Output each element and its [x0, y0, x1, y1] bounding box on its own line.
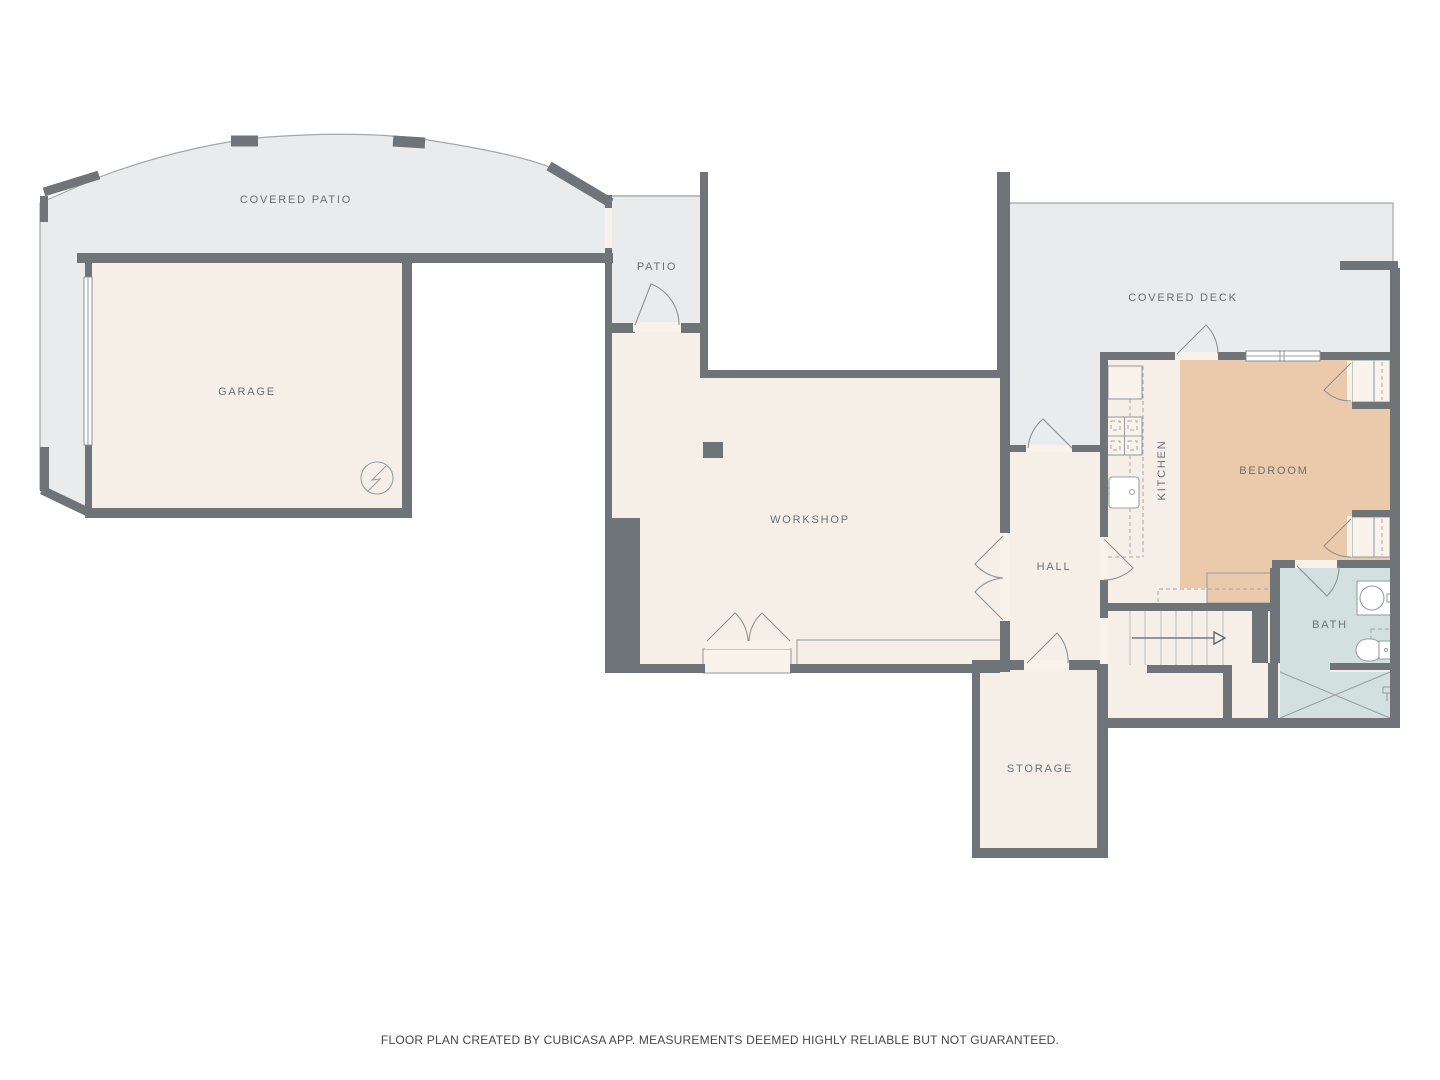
workshop-entry-bay [703, 649, 791, 673]
bath-sink-fixture [1357, 581, 1393, 615]
bedroom-closet-top [1352, 360, 1390, 402]
room-label-patio: PATIO [637, 261, 677, 273]
garage-window [84, 277, 92, 445]
workshop-column [703, 442, 723, 458]
room-label-bedroom: BEDROOM [1239, 465, 1308, 477]
storage-area [972, 660, 1108, 858]
fridge-fixture [1108, 366, 1142, 399]
room-label-covered-patio: COVERED PATIO [240, 194, 352, 206]
workshop-area [605, 330, 1010, 672]
room-label-kitchen: KITCHEN [1156, 440, 1168, 501]
room-label-garage: GARAGE [218, 386, 276, 398]
room-label-covered-deck: COVERED DECK [1128, 292, 1238, 304]
room-label-bath: BATH [1312, 619, 1348, 631]
footer-disclaimer: FLOOR PLAN CREATED BY CUBICASA APP. MEAS… [0, 1033, 1440, 1047]
hall-area [1005, 445, 1108, 672]
floor-plan-svg: COVERED PATIO GARAGE PATIO WORKSHOP COVE… [0, 0, 1440, 1080]
room-label-workshop: WORKSHOP [770, 514, 850, 526]
floor-plan-page: COVERED PATIO GARAGE PATIO WORKSHOP COVE… [0, 0, 1440, 1080]
bedroom-window [1246, 351, 1320, 361]
room-label-storage: STORAGE [1007, 763, 1073, 775]
stove-fixture [1107, 417, 1142, 455]
room-label-hall: HALL [1037, 561, 1072, 573]
bedroom-closet-bottom [1352, 517, 1390, 557]
